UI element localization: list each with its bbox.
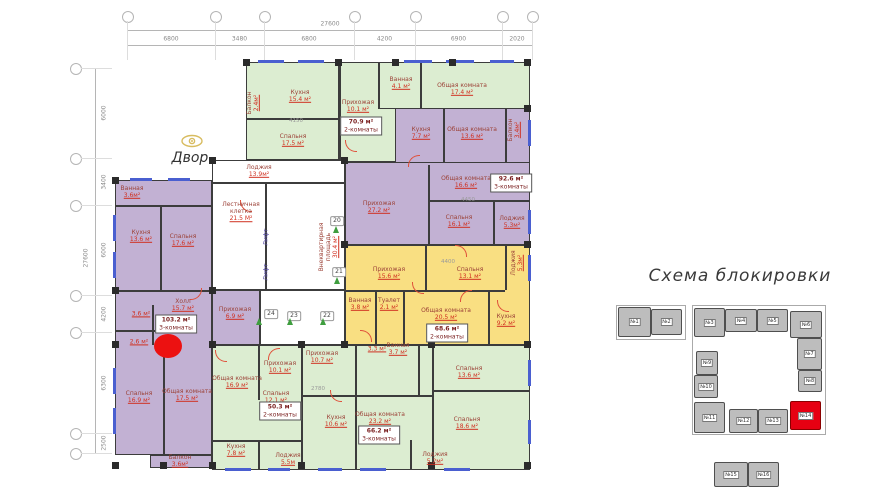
structural-column	[160, 462, 167, 469]
window	[113, 368, 116, 394]
interior-wall	[115, 330, 155, 332]
window	[404, 60, 432, 63]
scheme-block-number: №8	[804, 377, 816, 385]
window	[113, 408, 116, 434]
apartment-block	[378, 62, 530, 109]
floor-plan-canvas: Двор 27600 27600 Схема блокировки Балкон…	[0, 0, 888, 499]
structural-column	[112, 341, 119, 348]
window	[490, 60, 514, 63]
interior-wall	[488, 290, 490, 345]
grid-line	[127, 21, 128, 60]
structural-column	[524, 105, 531, 112]
scheme-block-number: №16	[756, 471, 772, 479]
grid-bubble	[70, 63, 82, 75]
grid-bubble	[410, 11, 422, 23]
grid-bubble	[122, 11, 134, 23]
inner-dimension: 2780	[311, 386, 325, 392]
grid-line	[81, 453, 112, 454]
interior-wall	[505, 245, 507, 290]
window	[258, 60, 284, 63]
apartment-summary[interactable]: 50.3 м²2-комнаты	[259, 402, 301, 421]
structural-column	[209, 341, 216, 348]
structural-column	[392, 59, 399, 66]
dimension-line-left	[95, 68, 96, 453]
interior-wall	[432, 390, 530, 392]
scheme-block-number: №13	[765, 417, 781, 425]
window	[528, 420, 531, 444]
scheme-block-number: №15	[723, 471, 739, 479]
plant-icon	[334, 277, 340, 284]
grid-line	[532, 21, 533, 60]
scheme-block[interactable]: №8	[798, 370, 822, 392]
grid-bubble	[70, 428, 82, 440]
interior-wall	[265, 182, 267, 290]
scheme-block[interactable]: №16	[748, 462, 779, 487]
scheme-block-number: №3	[703, 319, 715, 327]
structural-column	[524, 462, 531, 469]
scheme-title: Схема блокировки	[640, 266, 840, 286]
interior-wall	[418, 345, 420, 395]
structural-column	[341, 341, 348, 348]
scheme-block-number: №12	[736, 417, 752, 425]
interior-wall	[302, 395, 432, 397]
scheme-block-number: №2	[660, 318, 672, 326]
interior-wall	[420, 62, 422, 109]
interior-wall	[163, 345, 165, 455]
grid-line	[81, 332, 112, 333]
grid-line	[81, 68, 112, 69]
grid-bubble	[349, 11, 361, 23]
interior-wall	[375, 290, 377, 345]
dimension-total-left: 27600	[83, 248, 90, 267]
window	[528, 255, 531, 281]
structural-column	[298, 341, 305, 348]
inner-dimension: 4400	[441, 259, 455, 265]
dimension-label: 2020	[509, 36, 524, 43]
interior-wall	[428, 165, 430, 245]
grid-bubble	[497, 11, 509, 23]
entrance-number-badge: 21	[332, 267, 346, 277]
interior-wall	[338, 62, 340, 160]
scheme-block-number: №11	[702, 414, 718, 422]
apartment-block	[212, 160, 345, 290]
grid-line	[354, 21, 355, 60]
selected-apartment-marker[interactable]	[154, 334, 182, 358]
window	[168, 178, 190, 181]
grid-line	[415, 21, 416, 60]
scheme-block-number: №4	[735, 317, 747, 325]
structural-column	[524, 241, 531, 248]
grid-line	[81, 295, 112, 296]
window	[318, 468, 342, 471]
apartment-summary[interactable]: 66.2 м²3-комнаты	[358, 426, 400, 445]
scheme-block-number: №7	[803, 350, 815, 358]
inner-dimension: 4450	[461, 197, 475, 203]
structural-column	[112, 177, 119, 184]
grid-line	[81, 433, 112, 434]
scheme-block[interactable]: №1	[618, 307, 651, 337]
scheme-block[interactable]: №3	[694, 308, 725, 337]
apartment-summary[interactable]: 103.2 м²3-комнаты	[155, 315, 197, 334]
scheme-block-number: №6	[800, 321, 812, 329]
structural-column	[428, 462, 435, 469]
apartment-summary[interactable]: 68.6 м²2-комнаты	[426, 324, 468, 343]
apartment-summary[interactable]: 92.6 м²3-комнаты	[490, 174, 532, 193]
grid-line	[215, 21, 216, 60]
structural-column	[524, 341, 531, 348]
grid-bubble	[70, 153, 82, 165]
dimension-label: 6800	[163, 36, 178, 43]
structural-column	[524, 59, 531, 66]
interior-wall	[378, 62, 380, 109]
interior-wall	[160, 207, 162, 290]
structural-column	[449, 59, 456, 66]
interior-wall	[428, 200, 530, 202]
window	[528, 210, 531, 234]
entrance-number-badge: 24	[264, 309, 278, 319]
dimension-label: 4200	[101, 306, 108, 321]
plant-icon	[256, 318, 262, 325]
structural-column	[298, 462, 305, 469]
scheme-block-number: №9	[701, 359, 713, 367]
apartment-summary[interactable]: 70.9 м²2-комнаты	[340, 117, 382, 136]
interior-wall	[493, 202, 495, 245]
scheme-block-active[interactable]: №14	[790, 401, 821, 430]
interior-wall	[212, 182, 345, 184]
plant-icon	[333, 226, 339, 233]
interior-wall	[443, 108, 445, 163]
structural-column	[243, 59, 250, 66]
grid-bubble	[70, 327, 82, 339]
scheme-block[interactable]: №11	[694, 402, 725, 433]
interior-wall	[152, 305, 154, 345]
dimension-label: 6000	[101, 242, 108, 257]
grid-line	[264, 21, 265, 60]
dimension-line-top	[127, 30, 532, 31]
interior-wall	[258, 440, 260, 470]
interior-wall	[432, 345, 434, 470]
dimension-label: 6800	[301, 36, 316, 43]
interior-wall	[355, 397, 357, 470]
interior-wall	[258, 345, 260, 400]
structural-column	[209, 287, 216, 294]
interior-wall	[410, 440, 412, 470]
grid-bubble	[70, 200, 82, 212]
scheme-block[interactable]: №9	[696, 351, 718, 375]
dimension-label: 6900	[451, 36, 466, 43]
window	[528, 120, 531, 146]
window	[528, 360, 531, 386]
interior-wall	[115, 205, 212, 207]
grid-bubble	[70, 448, 82, 460]
window	[225, 468, 251, 471]
structural-column	[341, 157, 348, 164]
window	[113, 252, 116, 278]
scheme-block[interactable]: №7	[797, 338, 822, 370]
grid-bubble	[70, 290, 82, 302]
apartment-block	[212, 290, 260, 345]
structural-column	[112, 287, 119, 294]
scheme-block-number: №5	[766, 317, 778, 325]
interior-wall	[355, 345, 357, 395]
scheme-block[interactable]: №5	[757, 309, 788, 332]
grid-line	[81, 158, 112, 159]
scheme-block[interactable]: №4	[725, 309, 757, 332]
entrance-number-badge: 20	[330, 216, 344, 226]
dimension-label: 3400	[101, 174, 108, 189]
scheme-block[interactable]: №2	[651, 309, 682, 335]
interior-wall	[425, 245, 427, 290]
dimension-label: 6300	[101, 375, 108, 390]
window	[130, 178, 152, 181]
interior-wall	[345, 290, 505, 292]
interior-wall	[403, 290, 405, 345]
interior-wall	[212, 440, 302, 442]
inner-dimension: 4150	[289, 118, 303, 124]
structural-column	[209, 462, 216, 469]
interior-wall	[505, 108, 507, 163]
grid-line	[502, 21, 503, 60]
plant-icon	[320, 318, 326, 325]
dimension-label: 4200	[377, 36, 392, 43]
window	[298, 60, 324, 63]
apartment-block	[302, 345, 530, 470]
structural-column	[335, 59, 342, 66]
structural-column	[112, 462, 119, 469]
structural-column	[209, 157, 216, 164]
dimension-label: 2500	[101, 435, 108, 450]
dimension-label: 3480	[232, 36, 247, 43]
scheme-block-number: №10	[698, 383, 714, 391]
scheme-block[interactable]: №6	[790, 311, 822, 338]
scheme-block[interactable]: №12	[729, 409, 758, 433]
grid-bubble	[527, 11, 539, 23]
scheme-block[interactable]: №15	[714, 462, 748, 487]
dimension-label: 6000	[101, 105, 108, 120]
window	[113, 215, 116, 241]
scheme-block-number: №1	[628, 318, 640, 326]
apartment-block	[246, 62, 340, 160]
window	[360, 468, 386, 471]
eye-icon	[180, 133, 204, 149]
window	[268, 468, 290, 471]
grid-line	[81, 205, 112, 206]
dimension-total-top: 27600	[320, 21, 339, 28]
scheme-block[interactable]: №10	[694, 375, 718, 398]
plant-icon	[287, 318, 293, 325]
window	[444, 468, 470, 471]
scheme-block[interactable]: №13	[758, 409, 788, 433]
structural-column	[341, 241, 348, 248]
grid-bubble	[210, 11, 222, 23]
dimension-line-top	[127, 45, 532, 46]
grid-bubble	[259, 11, 271, 23]
scheme-block-number: №14	[798, 412, 814, 420]
